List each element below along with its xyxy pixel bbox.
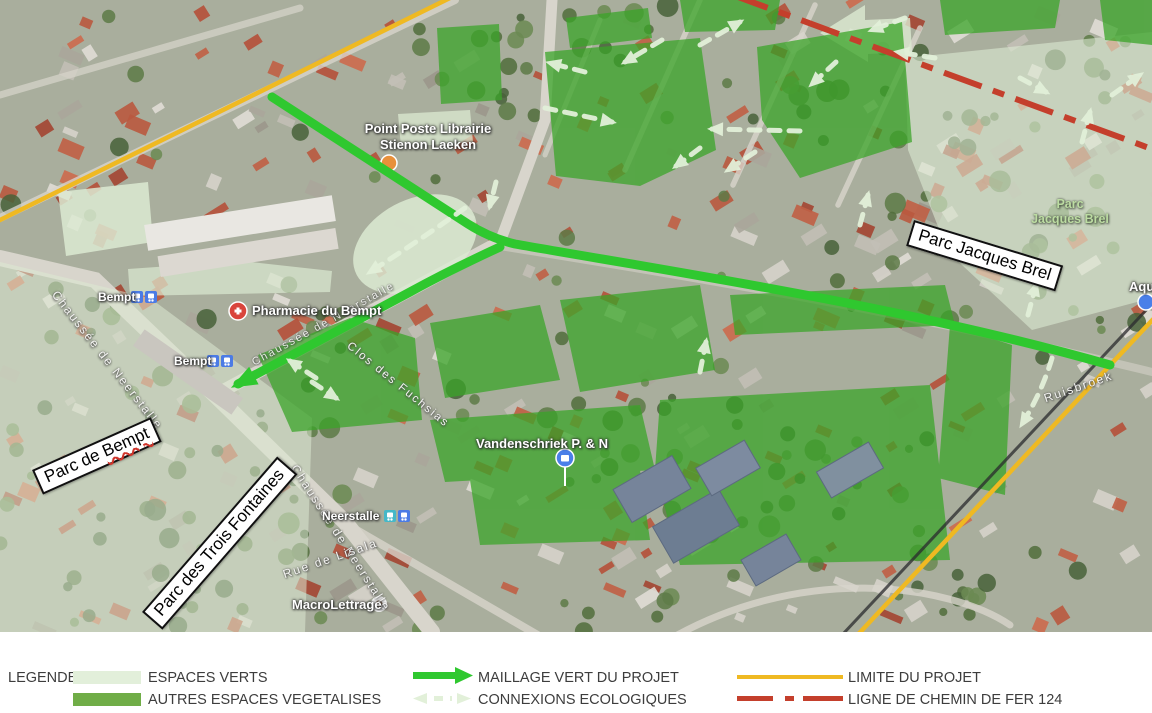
legend-label-autres-espaces: AUTRES ESPACES VEGETALISES: [148, 692, 381, 708]
park-label-line: Jacques Brel: [1000, 212, 1140, 227]
aerial-map: Chaussée de Neerstalle Chaussée de Neers…: [0, 0, 1152, 632]
slide: Chaussée de Neerstalle Chaussée de Neers…: [0, 0, 1152, 713]
poi-label-aqua: Aqu: [1129, 279, 1152, 294]
aqua-pin: [1138, 294, 1152, 310]
legend-label-limite: LIMITE DU PROJET: [848, 670, 981, 686]
legend-limite-line-icon: [737, 675, 843, 679]
legend-maillage-arrow-icon: [410, 666, 474, 685]
poi-label-macrolettrage: MacroLettrage: [292, 597, 382, 612]
poi-label-line: Stienon Laeken: [362, 137, 494, 153]
legend-label-maillage: MAILLAGE VERT DU PROJET: [478, 670, 679, 686]
map-canvas: [0, 0, 1152, 632]
legend-swatch-espaces-verts: [73, 671, 141, 684]
legend-label-railway: LIGNE DE CHEMIN DE FER 124: [848, 692, 1062, 708]
legend-label-espaces-verts: ESPACES VERTS: [148, 670, 268, 686]
park-label-jacques-brel-map: Parc Jacques Brel: [1000, 197, 1140, 227]
poi-label-point-poste: Point Poste Librairie Stienon Laeken: [362, 121, 494, 153]
legend: LEGENDE : ESPACES VERTS AUTRES ESPACES V…: [0, 632, 1152, 713]
poi-label-vandenschriek: Vandenschriek P. & N: [476, 436, 608, 451]
legend-swatch-autres-espaces: [73, 693, 141, 706]
legend-railway-line-icon: [737, 695, 843, 702]
legend-connexions-arrow-icon: [410, 690, 474, 707]
stop-label-bempt-2: Bempt: [174, 354, 211, 368]
park-label-line: Parc: [1000, 197, 1140, 212]
stop-label-bempt-1: Bempt: [98, 290, 135, 304]
pharmacy-pin: [229, 302, 247, 320]
poi-label-pharmacie: Pharmacie du Bempt: [252, 303, 381, 318]
stop-label-neerstalle: Neerstalle: [322, 509, 379, 523]
legend-label-connexions: CONNEXIONS ECOLOGIQUES: [478, 692, 687, 708]
poi-label-line: Point Poste Librairie: [362, 121, 494, 137]
